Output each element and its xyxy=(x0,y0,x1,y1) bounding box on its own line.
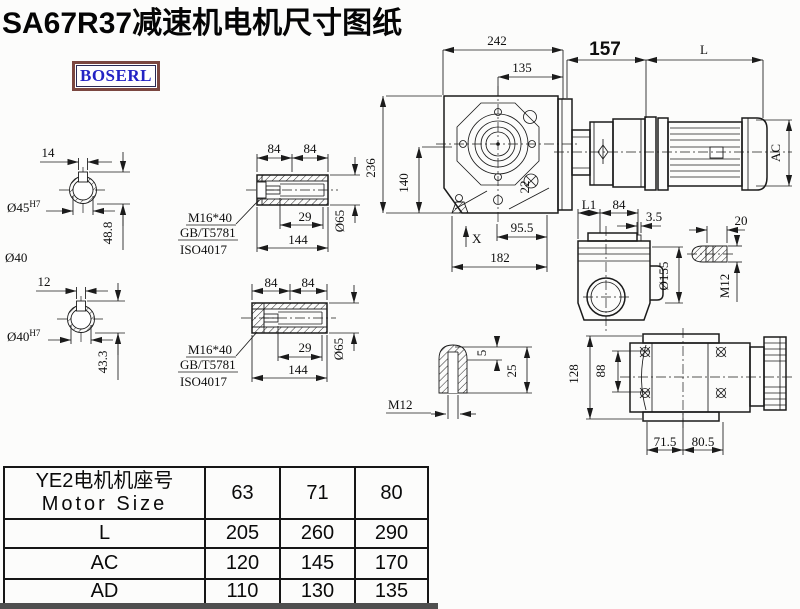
hollow-shaft-view-1: 84 84 29 144 Ø65 M16*40 GB/T5781 ISO4017 xyxy=(178,141,360,257)
header-cn: YE2电机机座号 xyxy=(5,470,204,493)
dim-22: 22 xyxy=(517,181,532,194)
size-80: 80 xyxy=(355,467,428,519)
drawing-sheet: SA67R37减速机电机尺寸图纸 BOSERL 14 Ø45H7 xyxy=(0,0,800,609)
mark-X: X xyxy=(472,231,482,246)
dim-84-side: 84 xyxy=(613,197,627,212)
row-label-L: L xyxy=(4,519,205,548)
main-view: 22 xyxy=(363,33,792,272)
dim-80-5: 80.5 xyxy=(692,434,715,449)
dim-84-b: 84 xyxy=(304,141,318,156)
bottom-view: 128 88 71.5 80.5 xyxy=(566,328,795,455)
label-bolt: M16*40 xyxy=(188,210,232,225)
dim-135: 135 xyxy=(512,60,532,75)
dim-L: L xyxy=(700,42,708,57)
dim-84-a: 84 xyxy=(268,141,282,156)
AC-80: 170 xyxy=(355,548,428,579)
label-bore-40: Ø40H7 xyxy=(7,328,41,344)
side-view: L1 84 3.5 Ø155 20 M12 xyxy=(578,197,748,332)
dim-84-d: 84 xyxy=(302,275,316,290)
AD-71: 130 xyxy=(280,579,355,604)
L-63: 205 xyxy=(205,519,280,548)
AC-71: 145 xyxy=(280,548,355,579)
adapter-fins xyxy=(764,337,786,410)
dim-dia-65-b: Ø65 xyxy=(331,338,346,360)
dim-L1: L1 xyxy=(582,197,596,212)
AC-63: 120 xyxy=(205,548,280,579)
dim-182: 182 xyxy=(490,250,510,265)
dim-29-b: 29 xyxy=(299,340,312,355)
label-std-iso: ISO4017 xyxy=(180,242,227,257)
shaft-section-view-2: 12 Ø40H7 43.3 xyxy=(7,274,125,380)
dim-140: 140 xyxy=(396,173,411,193)
dim-128: 128 xyxy=(566,364,581,384)
dim-95-5: 95.5 xyxy=(511,220,534,235)
bottom-bar xyxy=(0,603,438,609)
dim-84-c: 84 xyxy=(265,275,279,290)
shaft-end-detail: 5 25 M12 xyxy=(386,336,532,419)
motor-size-table: YE2电机机座号 Motor Size 63 71 80 L 205 260 2… xyxy=(3,466,429,605)
dim-3-5: 3.5 xyxy=(646,209,662,224)
row-label-AD: AD xyxy=(4,579,205,604)
dim-144-b: 144 xyxy=(288,362,308,377)
dim-157: 157 xyxy=(589,39,621,60)
label-bolt-b: M16*40 xyxy=(188,342,232,357)
AD-63: 110 xyxy=(205,579,280,604)
table-row-L: L 205 260 290 xyxy=(4,519,428,548)
motor-fins xyxy=(670,128,740,177)
header-en: Motor Size xyxy=(5,493,204,516)
dim-keyway-14: 14 xyxy=(42,145,56,160)
dim-M12-side: M12 xyxy=(717,274,732,299)
label-std-iso-b: ISO4017 xyxy=(180,374,227,389)
dim-88: 88 xyxy=(593,365,608,378)
dim-dia-65: Ø65 xyxy=(332,210,347,232)
size-63: 63 xyxy=(205,467,280,519)
dim-M12-end: M12 xyxy=(388,397,413,412)
dim-dia-155: Ø155 xyxy=(656,262,671,291)
label-std-gb: GB/T5781 xyxy=(180,225,236,240)
dim-25: 25 xyxy=(504,365,519,378)
dim-20: 20 xyxy=(735,213,748,228)
row-label-AC: AC xyxy=(4,548,205,579)
size-71: 71 xyxy=(280,467,355,519)
dim-71-5: 71.5 xyxy=(654,434,677,449)
dim-depth-48-8: 48.8 xyxy=(100,222,115,245)
label-std-gb-b: GB/T5781 xyxy=(180,357,236,372)
AD-80: 135 xyxy=(355,579,428,604)
header-motor-size: YE2电机机座号 Motor Size xyxy=(4,467,205,519)
L-80: 290 xyxy=(355,519,428,548)
hollow-shaft-view-2: 84 84 29 144 Ø65 M16*40 GB/T5781 ISO4017 xyxy=(178,275,359,389)
label-bore-45: Ø45H7 xyxy=(7,199,41,215)
L-71: 260 xyxy=(280,519,355,548)
table-row-AC: AC 120 145 170 xyxy=(4,548,428,579)
shaft-section-view-1: 14 Ø45H7 48.8 Ø40 xyxy=(5,145,130,265)
dim-236: 236 xyxy=(363,158,378,178)
dim-144: 144 xyxy=(288,232,308,247)
dim-242: 242 xyxy=(487,33,507,48)
dim-29: 29 xyxy=(299,209,312,224)
table-row-AD: AD 110 130 135 xyxy=(4,579,428,604)
dim-5: 5 xyxy=(474,350,489,357)
dim-AC: AC xyxy=(768,144,783,162)
table-header-row: YE2电机机座号 Motor Size 63 71 80 xyxy=(4,467,428,519)
dim-depth-43-3: 43.3 xyxy=(95,351,110,374)
dim-keyway-12: 12 xyxy=(38,274,51,289)
label-dia-40: Ø40 xyxy=(5,250,27,265)
